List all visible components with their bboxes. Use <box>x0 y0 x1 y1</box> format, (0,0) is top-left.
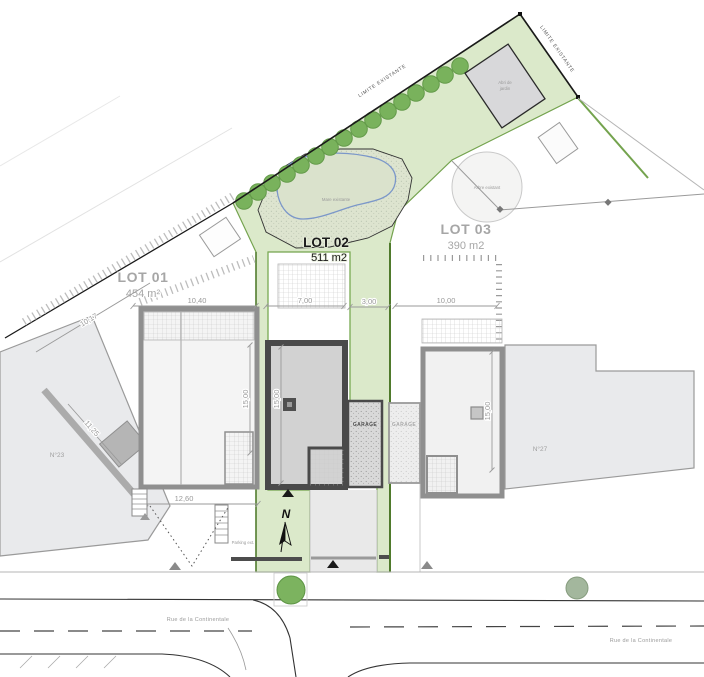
street: Rue de la Continentale Rue de la Contine… <box>0 573 704 677</box>
lot03-building <box>423 349 502 496</box>
dim-depth-lot01: 15,00 <box>241 390 250 409</box>
site-plan-drawing: Arbre existant Mare existante Abri de ja… <box>0 0 704 677</box>
lot03-area: 390 m2 <box>448 240 485 252</box>
dim-depth-lot03: 15,00 <box>483 402 492 421</box>
lot02-name: LOT 02 <box>303 235 349 250</box>
north-label: N <box>282 507 291 521</box>
dim-front-lot02: 7,00 <box>298 296 313 305</box>
lot02-garage-label: GARAGE <box>353 422 378 428</box>
dim-depth-lot02: 15,00 <box>272 390 281 409</box>
lot03-garage-label: GARAGE <box>392 422 417 428</box>
dim-front-gap: 3,00 <box>362 297 377 306</box>
lot01-name: LOT 01 <box>117 269 168 285</box>
lot03-garage: GARAGE <box>389 403 420 483</box>
lot02-garage: GARAGE <box>348 401 382 487</box>
site-plan: Arbre existant Mare existante Abri de ja… <box>0 0 704 677</box>
parking-label: Parking ext. <box>232 540 255 545</box>
lot03-name: LOT 03 <box>440 221 491 237</box>
street-tree-right <box>566 577 588 599</box>
garden-shed-label-2: jardin <box>499 86 511 91</box>
neighbour-parcel-lines <box>0 96 232 262</box>
existing-building-n27 <box>505 345 694 489</box>
garden-shed-label-1: Abri de <box>498 80 512 85</box>
n27-label: N°27 <box>533 445 548 453</box>
existing-outline-shed-right <box>538 122 578 163</box>
pond-label: Mare existante <box>322 197 351 202</box>
street-tree-left <box>274 573 307 606</box>
lot01-building <box>141 309 257 487</box>
dim-front-lot03: 10,00 <box>437 296 456 305</box>
street-name-right: Rue de la Continentale <box>610 638 673 644</box>
n23-label: N°23 <box>50 451 65 459</box>
lot02-area: 511 m2 <box>311 252 347 264</box>
street-name-left: Rue de la Continentale <box>167 617 230 623</box>
dim-front-lot01: 10,40 <box>188 296 207 305</box>
lot02-building <box>268 343 345 487</box>
dim-rear-lot01: 12,60 <box>175 494 194 503</box>
existing-tree-circle: Arbre existant <box>452 152 522 222</box>
small-outline-shed-left <box>199 217 240 256</box>
